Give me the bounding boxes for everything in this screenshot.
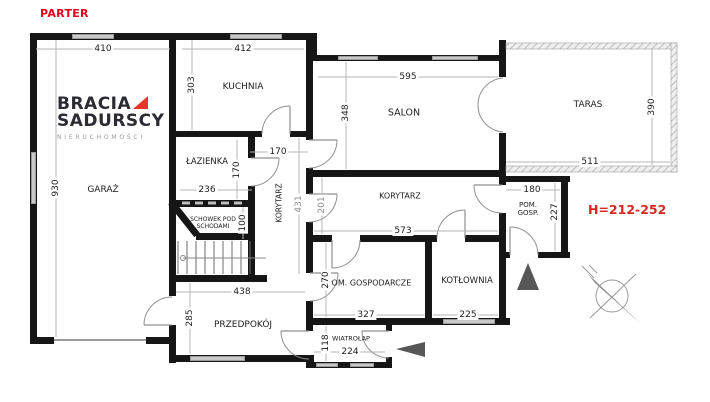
dim-korytarz-pion-dl: 431 bbox=[294, 193, 304, 214]
room-label-pom-gosp: POM. GOSP. bbox=[511, 201, 545, 217]
dim-przedsionek-szer: 170 bbox=[267, 147, 288, 157]
room-label-kuchnia: KUCHNIA bbox=[223, 82, 264, 92]
dim-pom-gosp-wys: 227 bbox=[550, 201, 560, 222]
dim-kuchnia-szer: 412 bbox=[232, 44, 253, 54]
room-label-schowek: SCHOWEK POD SCHODAMI bbox=[187, 217, 239, 231]
dim-pom-gosp-szer: 180 bbox=[521, 185, 542, 195]
room-label-pom-gospodarcze: POM. GOSPODARCZE bbox=[327, 278, 412, 287]
dim-taras-wys: 390 bbox=[647, 96, 657, 117]
height-note: H=212-252 bbox=[588, 202, 666, 217]
room-label-korytarz-pion: KORYTARZ bbox=[276, 183, 285, 222]
room-label-taras: TARAS bbox=[574, 100, 603, 110]
dim-przedpokoj-wys: 285 bbox=[185, 307, 195, 328]
dim-taras-szer: 511 bbox=[579, 157, 600, 167]
dim-pom-gospodarcze-wys: 270 bbox=[321, 269, 331, 290]
dim-salon-szer: 595 bbox=[397, 72, 418, 82]
dim-kuchnia-wys: 303 bbox=[187, 74, 197, 95]
room-label-wiatrolap: WIATROŁAP bbox=[332, 335, 370, 342]
dim-schowek-wys: 100 bbox=[238, 212, 248, 233]
dim-salon-wys: 348 bbox=[341, 102, 351, 123]
dim-wiatrolap-szer: 224 bbox=[339, 347, 360, 357]
floor-plan: PARTER BRACIA SADURSCY NIERUCHOMOŚCI bbox=[0, 0, 710, 402]
dim-lazienka-szer: 236 bbox=[196, 185, 217, 195]
room-label-lazienka: ŁAZIENKA bbox=[186, 158, 228, 168]
entrance-arrow-up bbox=[517, 263, 539, 290]
dim-garaz-szer: 410 bbox=[92, 44, 113, 54]
dimension-lines bbox=[36, 40, 670, 361]
room-label-przedpokoj: PRZEDPOKÓJ bbox=[214, 320, 272, 330]
dim-pom-gospodarcze-szer: 327 bbox=[355, 310, 376, 320]
dim-wiatrolap-wys: 118 bbox=[321, 332, 331, 353]
entrance-arrow-left bbox=[396, 342, 425, 357]
room-label-korytarz: KORYTARZ bbox=[379, 191, 421, 200]
room-label-kotlownia: KOTŁOWNIA bbox=[441, 277, 493, 287]
dim-przedpokoj-szer: 438 bbox=[231, 287, 252, 297]
dim-korytarz-dl: 573 bbox=[392, 226, 413, 236]
room-label-garaz: GARAŻ bbox=[87, 185, 118, 195]
compass-icon bbox=[582, 265, 641, 324]
staircase bbox=[178, 241, 266, 274]
dim-garaz-dl: 930 bbox=[51, 177, 61, 198]
dim-lazienka-wys: 170 bbox=[232, 159, 242, 180]
dim-przejscie-wys: 201 bbox=[317, 194, 327, 215]
dim-kotlownia-szer: 225 bbox=[457, 310, 478, 320]
room-label-salon: SALON bbox=[388, 109, 420, 120]
